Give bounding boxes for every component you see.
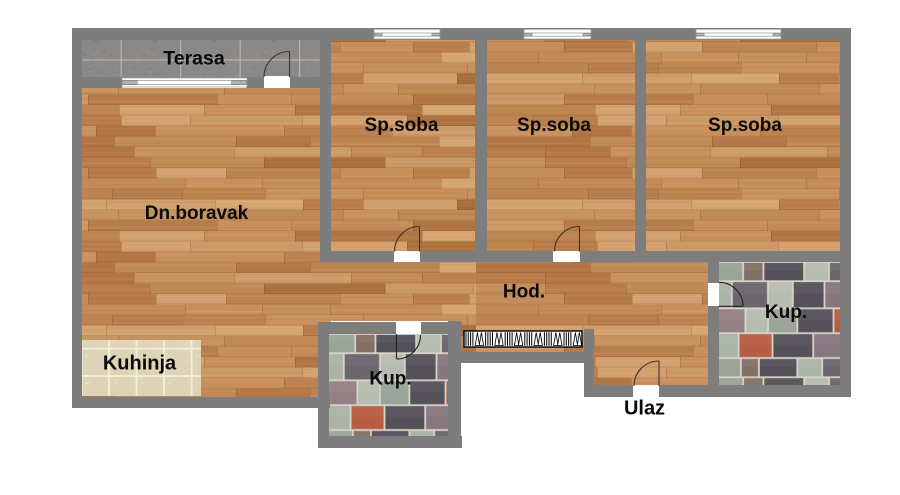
svg-text:Kuhinja: Kuhinja (103, 353, 177, 375)
svg-text:Dn.boravak: Dn.boravak (145, 203, 249, 224)
svg-text:Sp.soba: Sp.soba (708, 115, 782, 136)
svg-text:Sp.soba: Sp.soba (517, 115, 591, 136)
svg-text:Hod.: Hod. (503, 282, 545, 303)
svg-text:Kup.: Kup. (369, 369, 411, 390)
svg-text:Sp.soba: Sp.soba (365, 115, 439, 136)
svg-text:Ulaz: Ulaz (624, 398, 665, 420)
svg-text:Kup.: Kup. (765, 302, 807, 323)
svg-text:Terasa: Terasa (163, 48, 225, 70)
